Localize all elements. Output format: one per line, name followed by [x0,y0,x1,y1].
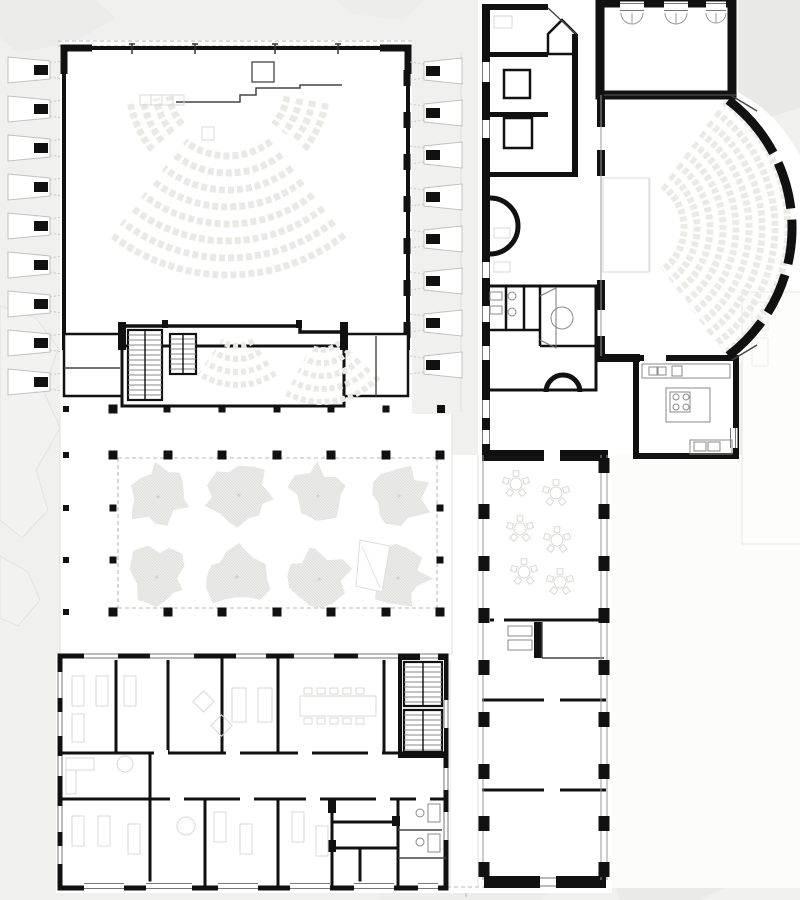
opening [376,796,390,803]
rehearsal-room [600,3,732,95]
column [109,451,118,460]
opening [368,750,382,757]
column [218,451,227,460]
window-slit [236,652,266,660]
staircase [404,710,442,752]
wall-chunk [534,622,542,658]
column [63,557,69,563]
kitchen-window-slits [729,428,738,448]
wall-chunk [484,876,540,888]
opening [154,750,168,757]
staircase [170,334,196,374]
fin-core [426,276,440,286]
window-slit [146,882,192,891]
wall-chunk [340,322,348,350]
staircase [128,330,162,400]
column [63,609,69,615]
pilaster [479,556,490,571]
pilaster [599,764,610,779]
column [273,451,282,460]
opening [226,750,240,757]
wall-chunk [600,354,640,362]
pilaster [404,196,411,212]
column [436,608,445,617]
opening [544,787,560,795]
column [436,451,445,460]
window-slit [442,812,450,840]
column [382,451,391,460]
opening [544,697,560,705]
concert-hall [64,44,408,348]
window-slit [56,712,64,736]
window-slit [290,882,330,891]
opening [306,796,320,803]
wall-chunk [328,799,336,813]
fin-core [426,318,440,328]
wall-chunk [328,840,336,852]
curved-wall-segment [788,220,792,264]
tree-trunk [397,494,400,497]
fin-core [34,260,48,270]
column [382,608,391,617]
fin-core [34,338,48,348]
wall-chunk [392,816,400,826]
small-room-b [504,118,532,148]
window-slit [358,652,398,660]
window-slit [294,652,334,660]
wall-chunk [556,876,606,888]
pilaster [404,112,411,128]
window-slit [442,768,450,790]
wall-chunk [162,320,168,328]
column [437,557,444,564]
window-slit [442,700,450,728]
pilaster [599,504,610,519]
column [110,557,117,564]
stage-side-room-west [64,334,122,396]
stage-foyer [64,326,408,406]
window-slit [56,672,64,698]
rehearsal-window-slits [620,2,726,13]
pilaster [599,556,610,571]
pilaster [599,458,610,473]
tree-trunk [396,576,399,579]
tree-trunk [156,495,159,498]
fin-core [426,66,440,76]
staircase [404,662,442,706]
pilaster [479,816,490,831]
column [63,406,69,412]
column [164,451,173,460]
tree-trunk [317,577,320,580]
pilaster [404,154,411,170]
column [164,608,173,617]
fin-core [34,377,48,387]
pilaster [599,712,610,727]
fin-core [426,108,440,118]
fin-core [34,182,48,192]
column [437,505,444,512]
window-slit [84,882,124,891]
window-slit [56,756,64,776]
pilaster [599,660,610,675]
fin-core [426,192,440,202]
tree-trunk [237,493,240,496]
opening [298,750,312,757]
opening [644,352,666,363]
fin-core [426,360,440,370]
window-slit [84,652,118,660]
column [218,608,227,617]
pilaster [479,712,490,727]
window-slit [218,882,258,891]
pilaster [599,816,610,831]
tree-trunk [235,575,238,578]
pilaster [404,280,411,296]
column [109,405,118,414]
window-slit [729,428,738,448]
pilaster [404,70,411,86]
wall-chunk [296,320,302,328]
opening [170,796,184,803]
pilaster [479,660,490,675]
window-slit [420,652,438,660]
office-wing [60,656,446,888]
opening [544,450,560,461]
pilaster [479,862,490,877]
window-slit [150,652,194,660]
fin-core [34,65,48,75]
window-slit [354,882,394,891]
fin-core [34,221,48,231]
floor-plan-drawing [0,0,800,900]
floor-plan-canvas [0,0,800,900]
column [63,505,69,511]
opening [416,796,430,803]
opening [240,796,254,803]
window-slit [56,846,64,864]
small-room-a [504,70,530,98]
window-slit [56,806,64,832]
pilaster [599,608,610,623]
fin-core [34,299,48,309]
fin-core [426,150,440,160]
column [110,505,117,512]
window-slit [418,882,438,891]
tree-trunk [155,575,158,578]
column [63,452,69,458]
kitchen [636,358,736,456]
column [109,608,118,617]
wing-window-slits [540,876,556,888]
wall-chunk [118,322,126,350]
pilaster [479,504,490,519]
column [327,451,336,460]
column [327,608,336,617]
pilaster [599,862,610,877]
pilaster [479,764,490,779]
column [273,608,282,617]
fin-core [34,104,48,114]
column [383,406,390,413]
opening [494,617,504,624]
fin-core [426,234,440,244]
tree-trunk [316,494,319,497]
pilaster [479,608,490,623]
column [437,405,445,413]
fin-core [34,143,48,153]
pilaster [404,238,411,254]
